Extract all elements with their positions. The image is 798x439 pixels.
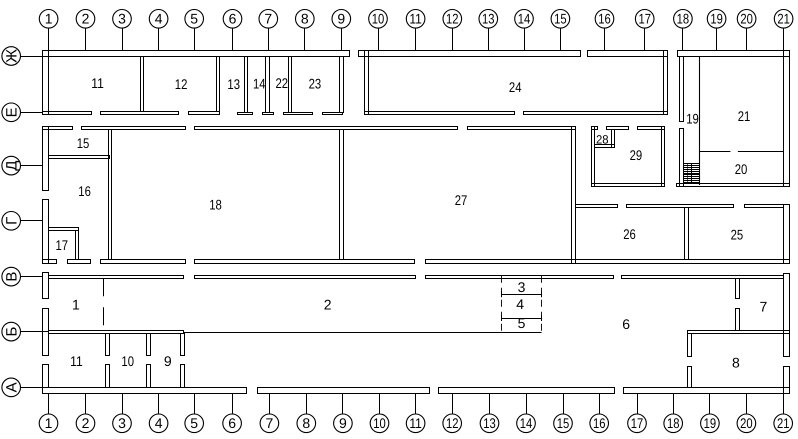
svg-text:6: 6 (228, 415, 236, 431)
svg-text:21: 21 (738, 108, 751, 124)
svg-text:21: 21 (777, 11, 790, 27)
svg-text:14: 14 (520, 415, 533, 431)
svg-text:1: 1 (45, 11, 53, 27)
svg-text:19: 19 (686, 110, 699, 126)
svg-text:15: 15 (557, 415, 570, 431)
svg-text:20: 20 (735, 161, 748, 177)
svg-text:11: 11 (409, 11, 422, 27)
svg-text:Г: Г (3, 217, 20, 225)
svg-text:8: 8 (301, 11, 309, 27)
svg-text:13: 13 (227, 76, 240, 92)
svg-text:4: 4 (516, 296, 524, 312)
svg-text:14: 14 (253, 76, 266, 92)
svg-text:12: 12 (175, 76, 188, 92)
svg-text:4: 4 (155, 415, 163, 431)
svg-text:23: 23 (309, 75, 322, 91)
svg-text:24: 24 (509, 79, 522, 95)
svg-text:2: 2 (82, 415, 90, 431)
svg-text:15: 15 (77, 135, 90, 151)
svg-text:Д: Д (3, 161, 20, 171)
svg-text:9: 9 (164, 353, 172, 369)
svg-text:7: 7 (266, 415, 274, 431)
svg-text:11: 11 (91, 75, 104, 91)
svg-text:3: 3 (118, 415, 126, 431)
svg-text:3: 3 (118, 11, 126, 27)
svg-text:10: 10 (373, 415, 386, 431)
svg-text:27: 27 (455, 192, 468, 208)
svg-text:3: 3 (518, 279, 526, 295)
svg-text:7: 7 (760, 298, 768, 314)
svg-text:20: 20 (740, 11, 753, 27)
svg-text:13: 13 (482, 11, 495, 27)
svg-text:Е: Е (3, 107, 20, 117)
svg-text:10: 10 (121, 353, 134, 369)
svg-text:В: В (3, 272, 20, 282)
svg-text:4: 4 (155, 11, 163, 27)
svg-text:14: 14 (518, 11, 531, 27)
svg-text:12: 12 (446, 11, 459, 27)
svg-text:17: 17 (56, 237, 69, 253)
svg-text:13: 13 (483, 415, 496, 431)
svg-text:8: 8 (302, 415, 310, 431)
svg-text:Ж: Ж (3, 49, 20, 63)
svg-text:6: 6 (229, 11, 237, 27)
svg-text:17: 17 (631, 415, 644, 431)
svg-text:21: 21 (777, 415, 790, 431)
svg-text:16: 16 (593, 415, 606, 431)
svg-text:12: 12 (446, 415, 459, 431)
svg-text:А: А (3, 382, 20, 392)
svg-text:5: 5 (190, 415, 198, 431)
svg-text:18: 18 (667, 415, 680, 431)
svg-text:6: 6 (622, 316, 630, 332)
svg-text:17: 17 (638, 11, 651, 27)
svg-text:25: 25 (731, 227, 744, 243)
svg-text:28: 28 (596, 133, 609, 147)
svg-text:29: 29 (630, 147, 643, 163)
svg-text:Б: Б (3, 327, 20, 337)
svg-text:26: 26 (623, 226, 636, 242)
svg-text:8: 8 (732, 355, 740, 371)
svg-text:9: 9 (337, 11, 345, 27)
svg-text:16: 16 (598, 11, 611, 27)
svg-text:18: 18 (209, 197, 222, 213)
svg-text:22: 22 (276, 75, 289, 91)
svg-text:11: 11 (70, 353, 83, 369)
svg-text:10: 10 (372, 11, 385, 27)
svg-text:2: 2 (82, 11, 90, 27)
svg-text:9: 9 (339, 415, 347, 431)
svg-text:1: 1 (72, 296, 80, 312)
svg-text:5: 5 (190, 11, 198, 27)
svg-text:19: 19 (710, 11, 723, 27)
svg-text:1: 1 (45, 415, 53, 431)
svg-text:18: 18 (677, 11, 690, 27)
svg-text:5: 5 (518, 315, 526, 331)
svg-text:19: 19 (704, 415, 717, 431)
svg-text:16: 16 (78, 183, 91, 199)
svg-text:7: 7 (264, 11, 272, 27)
svg-text:20: 20 (740, 415, 753, 431)
svg-text:15: 15 (554, 11, 567, 27)
svg-text:11: 11 (409, 415, 422, 431)
svg-text:2: 2 (324, 297, 332, 313)
